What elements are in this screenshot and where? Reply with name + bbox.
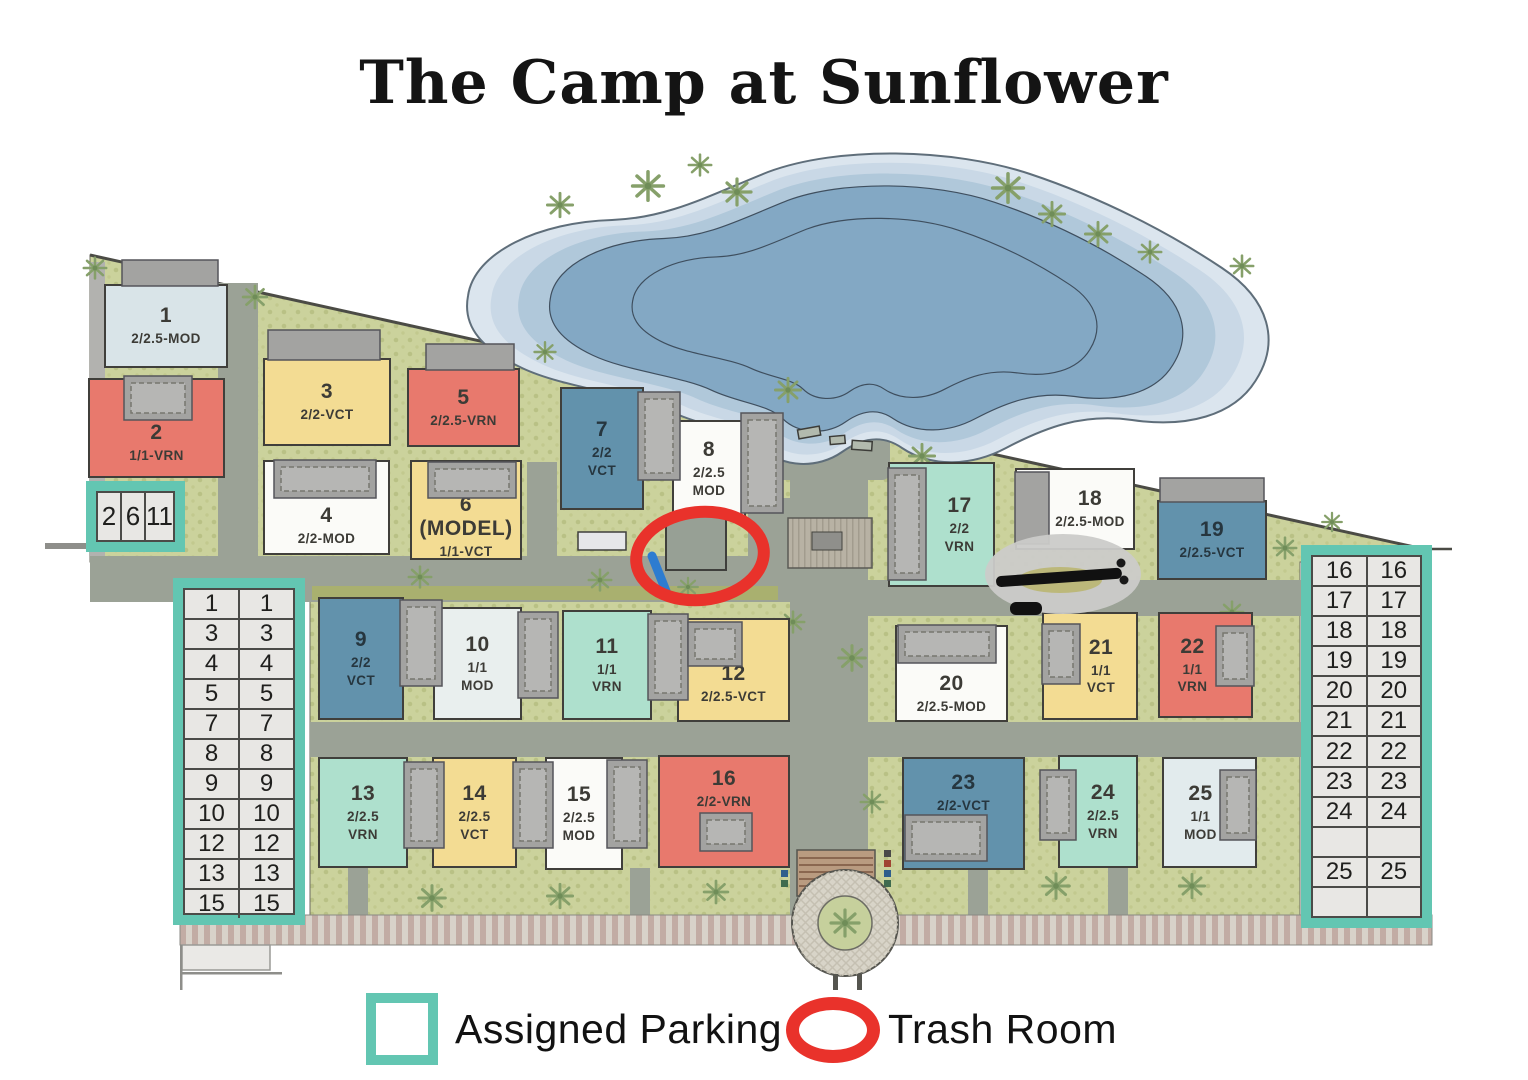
parking-row: 33 bbox=[185, 620, 293, 650]
parking-row: 1717 bbox=[1313, 587, 1420, 617]
parking-row: 77 bbox=[185, 710, 293, 740]
parking-stall bbox=[1368, 828, 1421, 856]
parking-stall: 15 bbox=[185, 890, 240, 918]
parking-stall: 9 bbox=[240, 770, 293, 798]
trash-room-circle-icon bbox=[786, 997, 880, 1063]
parking-stall: 13 bbox=[185, 860, 240, 888]
parking-row: 2121 bbox=[1313, 707, 1420, 737]
parking-stall: 4 bbox=[240, 650, 293, 678]
parking-stall: 3 bbox=[185, 620, 240, 648]
parking-row: 55 bbox=[185, 680, 293, 710]
parking-stall: 10 bbox=[240, 800, 293, 828]
parking-row: 1212 bbox=[185, 830, 293, 860]
parking-stall: 4 bbox=[185, 650, 240, 678]
parking-row: 11 bbox=[185, 590, 293, 620]
parking-row: 1515 bbox=[185, 890, 293, 918]
parking-stall: 11 bbox=[146, 493, 173, 540]
parking-stall: 5 bbox=[240, 680, 293, 708]
parking-stall: 8 bbox=[240, 740, 293, 768]
parking-stall: 5 bbox=[185, 680, 240, 708]
parking-stall: 12 bbox=[185, 830, 240, 858]
parking-stall: 9 bbox=[185, 770, 240, 798]
parking-stall: 7 bbox=[240, 710, 293, 738]
trash-room-label: Trash Room bbox=[888, 993, 1117, 1065]
parking-stall: 19 bbox=[1368, 647, 1421, 675]
parking-stall: 22 bbox=[1313, 737, 1368, 765]
parking-stall: 1 bbox=[240, 590, 293, 618]
parking-stall: 3 bbox=[240, 620, 293, 648]
parking-stall: 19 bbox=[1313, 647, 1368, 675]
ui-layer: 2 6 11 11 33 44 55 77 88 99 1010 1212 13… bbox=[0, 0, 1528, 1080]
parking-stall: 23 bbox=[1313, 768, 1368, 796]
parking-row: 1818 bbox=[1313, 617, 1420, 647]
parking-stall: 16 bbox=[1368, 557, 1421, 585]
parking-stall: 12 bbox=[240, 830, 293, 858]
parking-stall: 24 bbox=[1368, 798, 1421, 826]
parking-row: 1313 bbox=[185, 860, 293, 890]
parking-stall: 16 bbox=[1313, 557, 1368, 585]
parking-stall: 25 bbox=[1368, 858, 1421, 886]
parking-stall: 22 bbox=[1368, 737, 1421, 765]
parking-stall: 25 bbox=[1313, 858, 1368, 886]
parking-stall: 23 bbox=[1368, 768, 1421, 796]
parking-row: 2424 bbox=[1313, 798, 1420, 828]
parking-table-units-2-6-11: 2 6 11 bbox=[86, 481, 185, 552]
parking-stall bbox=[1368, 888, 1421, 916]
parking-stall: 15 bbox=[240, 890, 293, 918]
parking-stall bbox=[1313, 888, 1368, 916]
assigned-parking-swatch-icon bbox=[366, 993, 438, 1065]
parking-row bbox=[1313, 828, 1420, 858]
parking-row: 99 bbox=[185, 770, 293, 800]
parking-stall: 17 bbox=[1313, 587, 1368, 615]
parking-row: 1010 bbox=[185, 800, 293, 830]
parking-row: 2323 bbox=[1313, 768, 1420, 798]
parking-stall: 21 bbox=[1368, 707, 1421, 735]
parking-stall: 17 bbox=[1368, 587, 1421, 615]
parking-stall: 1 bbox=[185, 590, 240, 618]
parking-row: 88 bbox=[185, 740, 293, 770]
parking-row: 2222 bbox=[1313, 737, 1420, 767]
parking-stall: 20 bbox=[1368, 677, 1421, 705]
parking-stall: 8 bbox=[185, 740, 240, 768]
parking-row: 2020 bbox=[1313, 677, 1420, 707]
parking-row: 2525 bbox=[1313, 858, 1420, 888]
parking-table-right: 1616 1717 1818 1919 2020 2121 2222 2323 … bbox=[1301, 545, 1432, 928]
parking-row: 44 bbox=[185, 650, 293, 680]
parking-stall: 13 bbox=[240, 860, 293, 888]
parking-stall: 6 bbox=[122, 493, 146, 540]
parking-stall: 20 bbox=[1313, 677, 1368, 705]
parking-row: 1616 bbox=[1313, 557, 1420, 587]
parking-stall: 21 bbox=[1313, 707, 1368, 735]
parking-row: 1919 bbox=[1313, 647, 1420, 677]
site-plan-page: The Camp at Sunflower bbox=[0, 0, 1528, 1080]
parking-stall bbox=[1313, 828, 1368, 856]
parking-stall: 18 bbox=[1368, 617, 1421, 645]
parking-row bbox=[1313, 888, 1420, 916]
parking-stall: 24 bbox=[1313, 798, 1368, 826]
parking-stall: 2 bbox=[98, 493, 122, 540]
parking-stall: 10 bbox=[185, 800, 240, 828]
parking-stall: 18 bbox=[1313, 617, 1368, 645]
parking-stall: 7 bbox=[185, 710, 240, 738]
parking-table-left: 11 33 44 55 77 88 99 1010 1212 1313 1515 bbox=[173, 578, 305, 925]
assigned-parking-label: Assigned Parking bbox=[455, 993, 782, 1065]
